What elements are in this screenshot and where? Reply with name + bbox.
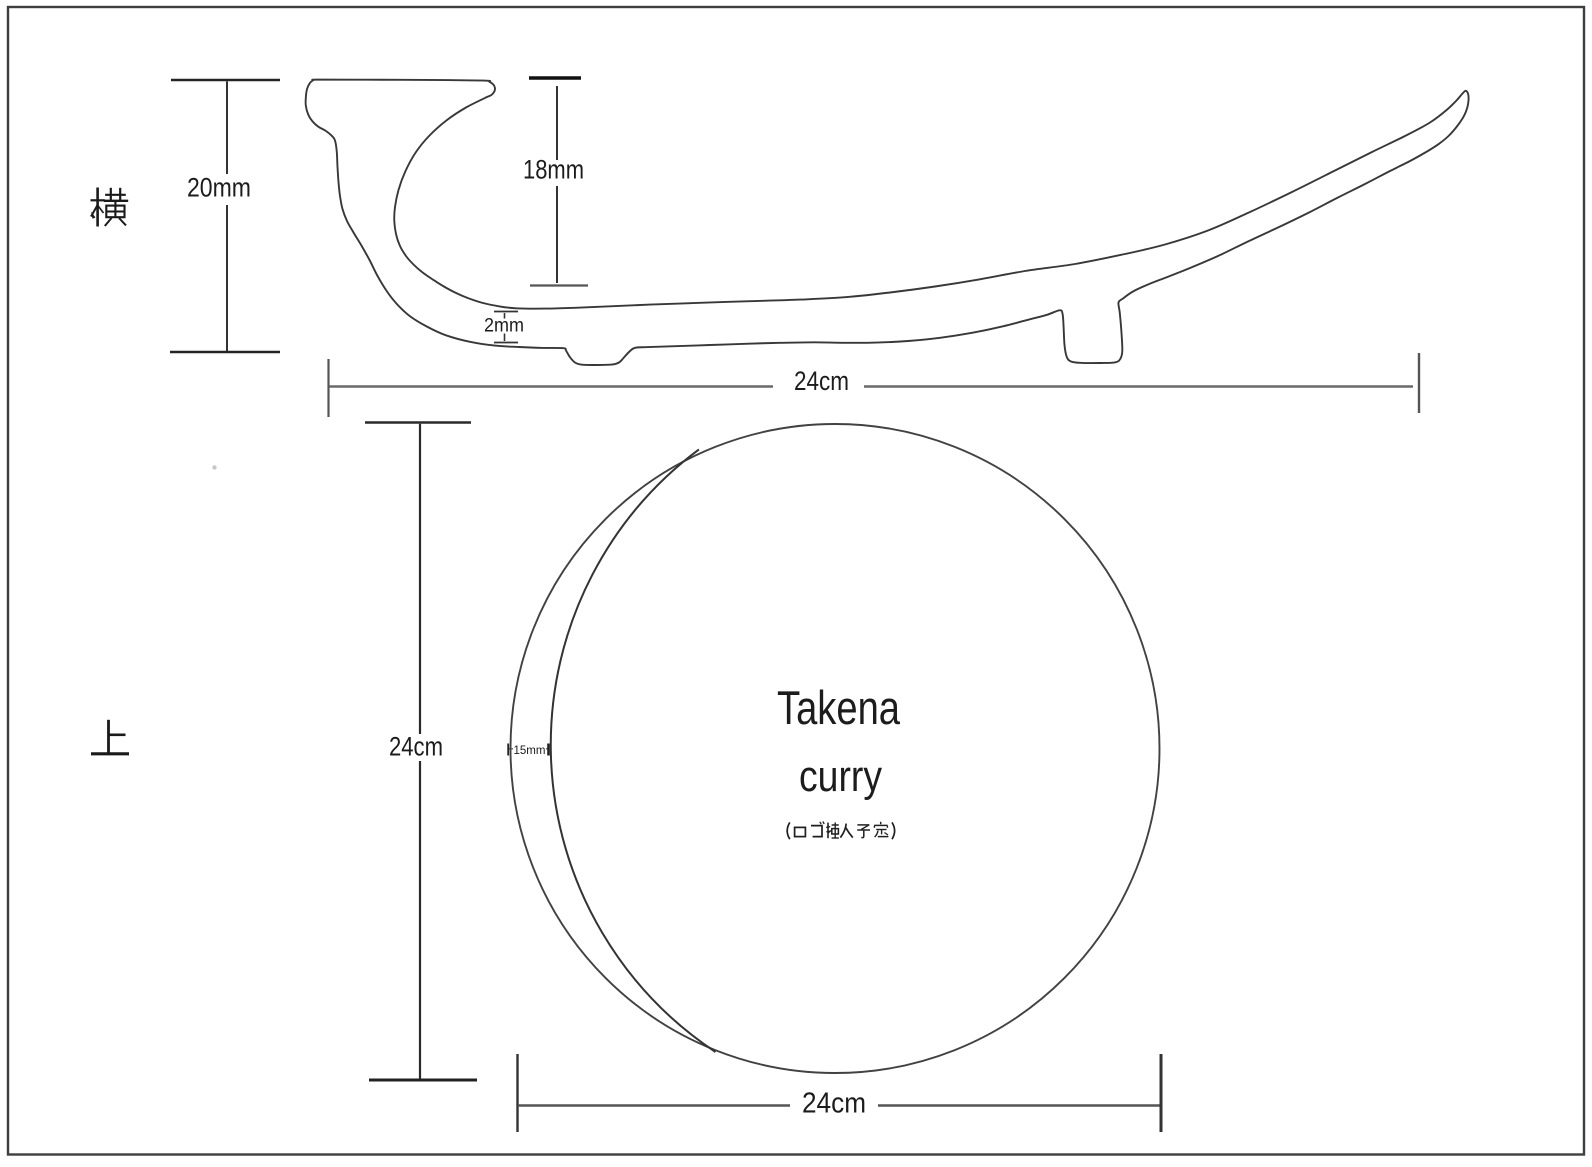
svg-text:24cm: 24cm (389, 732, 443, 762)
svg-text:curry: curry (799, 752, 882, 801)
svg-text:20mm: 20mm (187, 173, 251, 203)
svg-text:Takena: Takena (777, 681, 901, 734)
svg-text:2mm: 2mm (484, 315, 524, 337)
svg-text:15mm: 15mm (514, 745, 546, 757)
svg-text:24cm: 24cm (802, 1088, 866, 1120)
svg-text:18mm: 18mm (523, 155, 584, 185)
svg-text:24cm: 24cm (794, 366, 849, 396)
